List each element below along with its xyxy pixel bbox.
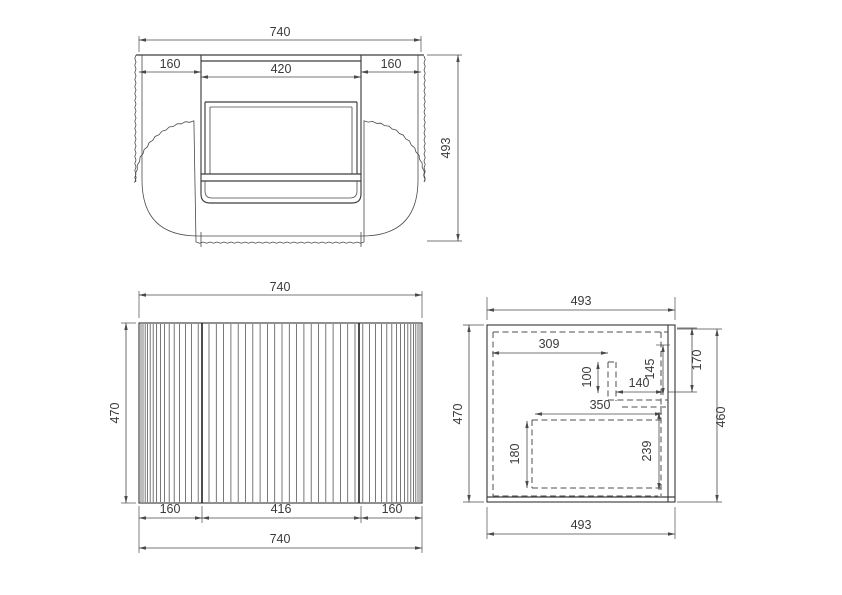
side-outline [487,325,675,502]
dim-side-back-height: 470 [451,404,465,425]
dim-top-overall-depth: 493 [439,138,453,159]
dim-front-overall-width: 740 [270,280,291,294]
side-view: 493 470 460 309 100 140 145 170 350 [451,294,728,539]
dim-front-height: 470 [108,403,122,424]
dim-side-top-width: 493 [571,294,592,308]
dim-side-basin-back: 100 [580,367,594,388]
dim-front-bottom-right: 160 [382,502,403,516]
top-view: 740 160 420 160 493 [135,25,462,247]
dim-side-drawer-inner-height: 180 [508,444,522,465]
dim-side-lower-panel: 239 [640,441,654,462]
front-panel-outline [139,323,422,503]
dim-side-front-height: 460 [714,407,728,428]
dim-front-bottom-left: 160 [160,502,181,516]
dim-front-overall-width-bottom: 740 [270,532,291,546]
dim-front-bottom-center: 416 [271,502,292,516]
drawer-top-outline [201,102,361,198]
front-view: 740 470 160 416 160 740 [108,280,422,553]
top-view-dimensions: 740 160 420 160 493 [139,25,462,241]
dim-side-drawer-depth: 350 [590,398,611,412]
flute-lines [141,324,420,502]
dim-top-overall-width: 740 [270,25,291,39]
front-view-dimensions: 740 470 160 416 160 740 [108,280,422,553]
dim-side-basin-offset: 309 [539,337,560,351]
vanity-technical-drawing: 740 160 420 160 493 740 470 [0,0,842,595]
technical-drawing-page: 740 160 420 160 493 740 470 [0,0,842,595]
dim-side-upper-recess: 145 [643,359,657,380]
dim-top-left-section: 160 [160,57,181,71]
dim-side-bottom-width: 493 [571,518,592,532]
dim-side-top-panel: 170 [690,350,704,371]
inner-wall-line [142,55,418,236]
fluted-outer-edge [135,55,425,243]
dim-top-right-section: 160 [381,57,402,71]
dim-top-opening-width: 420 [271,62,292,76]
